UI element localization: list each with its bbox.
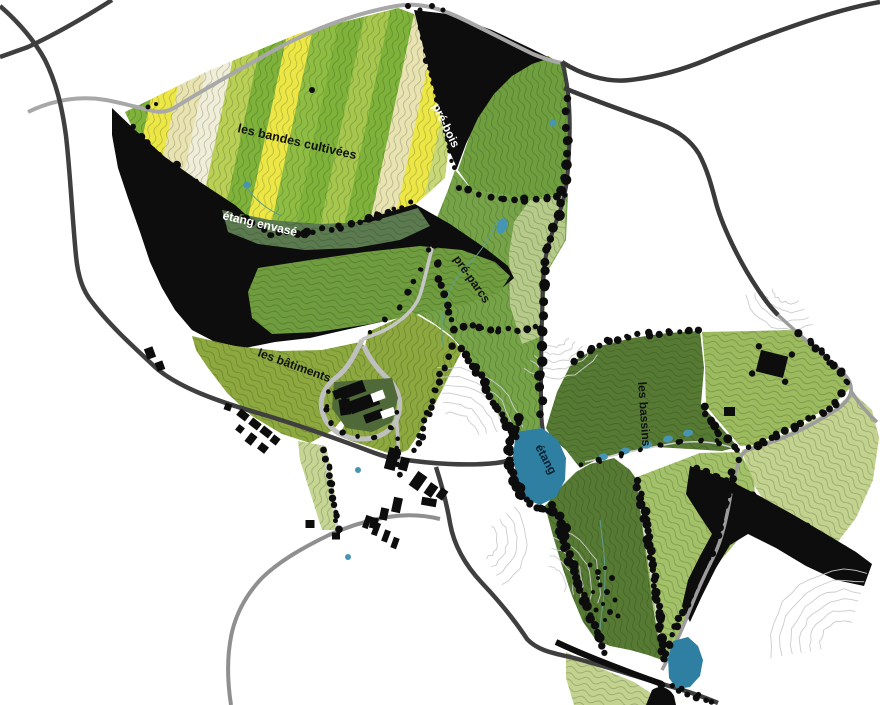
tree-dot [650,567,656,573]
tree-dot [340,429,346,435]
contour-line [502,507,527,585]
tree-dot [426,247,431,252]
tree-dot [441,8,446,13]
tree-dot [845,380,850,385]
tree-dot [693,465,700,472]
tree-dot [423,41,429,47]
map-canvas: les bandes cultivées pré-bois étang enva… [0,0,880,705]
tree-dot [486,393,494,401]
road-topleft-cross [0,0,112,57]
tree-dot [548,223,558,233]
tree-dot [619,451,625,457]
tree-dot [675,615,682,622]
tree-dot [442,365,448,371]
tree-dot [396,449,400,453]
tree-dot [326,389,331,394]
tree-dot [487,326,494,333]
contour-line [820,621,853,649]
tree-dot [533,196,540,203]
tree-dot [329,488,335,494]
tree-dot [162,159,170,167]
tree-dot [625,335,631,341]
tree-dot [388,425,393,430]
tree-dot [562,124,570,132]
tree-dot [521,197,528,204]
tree-dot [539,311,548,320]
tree-dot [537,326,547,336]
tree-dot [684,692,690,698]
tree-dot [392,207,397,212]
tree-dot [433,89,438,94]
tree-dot [146,105,151,110]
tree-dot [676,688,682,694]
tree-dot [719,518,725,524]
tree-dot [419,434,426,441]
tree-dot [563,150,571,158]
building [244,432,257,446]
tree-dot [533,324,538,329]
tree-dot [596,576,600,580]
tree-dot [561,160,572,171]
tree-dot [130,124,136,130]
tree-dot [564,95,572,103]
tree-dot [418,25,424,31]
tree-dot [729,481,735,487]
tree-dot [767,505,772,510]
tree-dot [577,351,585,359]
tree-dot [698,438,703,443]
tree-dot [812,529,819,536]
tree-dot [420,35,426,41]
tree-dot [837,368,846,377]
tree-dot [320,447,327,454]
tree-dot [695,327,702,334]
tree-dot [563,193,568,198]
tree-dot [728,468,736,476]
building [421,497,437,507]
tree-dot [658,681,666,689]
tree-dot [427,66,431,70]
tree-dot [333,510,338,515]
tree-dot [598,583,603,588]
tree-dot [154,102,158,106]
tree-dot [456,185,462,191]
building [269,434,280,445]
tree-dot [548,501,556,509]
tree-dot [588,563,593,568]
tree-dot [498,196,504,202]
tree-dot [794,329,802,337]
tree-dot [399,205,404,210]
tree-dot [819,347,825,353]
tree-dot [417,17,423,23]
tree-dot [657,442,662,447]
tree-dot [596,343,602,349]
tree-dot [666,328,672,334]
tree-dot [701,403,709,411]
tree-dot [331,502,337,508]
tree-dot [374,211,379,216]
tree-dot [693,584,698,589]
road-topright-2 [564,88,778,315]
tree-dot [601,602,605,606]
tree-dot [448,342,455,349]
tree-dot [445,309,452,316]
tree-dot [591,590,595,594]
tree-dot [715,430,722,437]
tree-dot [696,692,701,697]
building [306,520,315,528]
tree-dot [333,518,338,523]
tree-dot [723,434,732,443]
tree-dot [677,329,682,334]
tree-dot [335,223,342,230]
tree-dot [839,390,845,396]
tree-dot [543,195,550,202]
tree-dot [736,457,742,463]
tree-dot [173,161,181,169]
contour-line [445,412,478,435]
tree-dot [713,533,719,539]
tree-dot [515,419,522,426]
tree-dot [823,354,830,361]
contour-line [772,289,799,304]
building [332,533,340,540]
tree-dot [536,410,544,418]
tree-dot [595,569,601,575]
tree-dot [364,214,373,223]
tree-dot [205,190,213,198]
tree-dot [326,472,333,479]
tree-dot [382,317,386,321]
tree-dot [702,411,708,417]
tree-dot [541,258,550,267]
tree-dot [492,403,500,411]
tree-dot [603,618,607,622]
tree-dot [418,8,423,13]
tree-dot [716,441,722,447]
building [381,529,391,542]
tree-dot [830,361,838,369]
tree-dot [709,699,715,705]
tree-dot [511,197,518,204]
tree-dot [598,642,605,649]
building [338,398,351,415]
tree-dot [423,47,430,54]
tree-dot [395,436,400,441]
tree-dot [335,526,343,534]
tree-dot [634,331,640,337]
tree-dot [428,404,435,411]
tree-dot [769,435,775,441]
tree-dot [604,589,610,595]
tree-dot [685,327,693,335]
tree-dot [713,473,720,480]
tree-dot [328,420,334,426]
tree-dot [475,324,483,332]
tree-dot [327,480,334,487]
tree-dot [368,330,372,334]
tree-dot [445,353,452,360]
tree-dot [394,410,399,415]
tree-dot [432,387,437,392]
tree-dot [662,650,669,657]
tree-dot [436,371,443,378]
tree-dot [423,57,430,64]
tree-dot [194,179,198,183]
tree-dot [702,468,710,476]
tree-dot [464,186,472,194]
building [257,442,269,454]
tree-dot [776,508,784,516]
tree-dot [434,260,442,268]
tree-dot [596,457,602,463]
tree-dot [673,623,681,631]
tree-dot [791,425,798,432]
tree-dot [594,608,599,613]
tree-dot [397,304,402,309]
tree-dot [424,410,430,416]
tree-dot [436,276,442,282]
tree-dot [418,267,422,271]
tree-dot [656,627,662,633]
tree-dot [605,337,613,345]
tree-dot [476,192,482,198]
tree-dot [514,328,520,334]
tree-dot [694,578,700,584]
tree-dot [561,175,571,185]
tree-dot [576,586,584,594]
tree-dot [726,493,731,498]
tree-dot [854,559,861,566]
tree-dot [421,417,427,423]
tree-dot [303,228,312,237]
tree-dot [404,289,411,296]
tree-dot [395,454,400,459]
building-small-square [724,407,735,416]
tree-dot [526,501,533,508]
tree-dot [447,149,452,154]
tree-dot [544,243,552,251]
tree-dot [662,657,668,663]
tree-dot [323,407,329,413]
tree-dot [556,512,565,521]
tree-dot [757,499,763,505]
tree-dot [430,80,436,86]
tree-dot [309,87,315,93]
tree-dot [719,511,725,517]
tree-dot [460,323,468,331]
tree-dot [656,615,664,623]
forest-bottom-tip [646,687,676,705]
tree-dot [666,641,672,647]
tree-dot [844,550,852,558]
tree-dot [710,543,715,548]
tree-dot [535,382,544,391]
tree-dot [647,554,653,560]
tree-dot [405,3,411,9]
building [390,537,399,549]
tree-dot [705,555,711,561]
tree-dot [634,477,641,484]
tree-dot [438,282,445,289]
tree-dot [431,242,438,249]
tree-dot [322,456,329,463]
tree-dot [216,197,222,203]
tree-dot [717,524,724,531]
tree-dot [822,536,828,542]
building [259,425,273,438]
tree-dot [831,399,838,406]
building [235,424,245,434]
tree-dot [429,3,435,9]
tree-dot [828,540,837,549]
tree-dot [805,415,811,421]
tree-dot [722,502,729,509]
tree-dot [310,230,316,236]
tree-dot [540,282,550,292]
tree-dot [746,444,752,450]
tree-dot [541,266,550,275]
tree-dot [594,632,604,642]
tree-dot [826,406,833,413]
tree-dot [614,336,622,344]
tree-dot [656,603,663,610]
contour-line [487,526,498,559]
tree-dot [506,326,512,332]
tree-dot [582,601,592,611]
tree-dot [539,297,548,306]
tree-dot [356,435,360,439]
building [409,471,428,491]
tree-dot [607,609,613,615]
tree-dot [154,152,162,160]
contour-line [443,403,486,434]
tree-dot [411,448,416,453]
contour-line [491,519,508,567]
tree-dot [786,513,791,518]
tree-dot [537,356,547,366]
tree-dot [143,139,151,147]
tree-dot [420,426,426,432]
building [391,497,403,514]
tree-dot [505,437,514,446]
tree-dot [138,133,146,141]
road-bottom-left-gray [228,515,440,705]
tree-dot [450,326,458,334]
tree-dot [579,462,584,467]
tree-dot [563,136,572,145]
tree-dot [731,443,738,450]
tree-dot [372,435,377,440]
site-plan-map: les bandes cultivées pré-bois étang enva… [0,0,880,705]
tree-dot [150,147,155,152]
tree-dot [554,211,563,220]
tree-dot [613,598,618,603]
tree-dot [506,449,513,456]
tree-dot [812,344,820,352]
tree-dot [751,495,758,502]
tree-dot [647,547,656,556]
tree-dot [561,523,571,533]
tree-dot [638,448,642,452]
tree-dot [562,107,570,115]
tree-dot [820,410,827,417]
tree-dot [679,609,686,616]
tree-dot [327,465,333,471]
contour-line [810,610,856,651]
tree-dot [436,379,443,386]
tree-dot [444,302,452,310]
tree-dot [601,650,607,656]
tree-dot [523,325,531,333]
tree-dot [430,398,436,404]
tree-dot [678,439,683,444]
tree-dot [781,427,789,435]
tree-dot [563,542,571,550]
tree-dot [449,159,453,163]
tree-dot [537,505,545,513]
tree-dot [440,290,448,298]
tree-dot [688,592,694,598]
tree-dot [703,697,709,703]
tree-dot [488,194,495,201]
tree-dot [686,602,692,608]
tree-dot [470,322,476,328]
tree-dot [429,71,436,78]
tree-dot [670,632,675,637]
tree-dot [633,483,641,491]
tree-dot [408,200,413,205]
contour-line [544,338,569,347]
tree-dot [385,209,392,216]
tree-dot [395,462,400,467]
tree-dot [534,371,544,381]
tree-dot [449,317,454,322]
tree-dot [357,220,363,226]
tree-dot [329,496,335,502]
tree-dot [547,235,554,242]
tree-dot [803,523,811,531]
tree-dot [754,441,763,450]
tree-dot [709,550,716,557]
tree-dot [645,329,652,336]
tree-dot [656,331,663,338]
tree-dot [739,489,745,495]
tree-dot [537,341,547,351]
tree-dot [348,220,356,228]
tree-dot [646,533,654,541]
tree-dot [724,477,730,483]
tree-dot [495,329,501,335]
tree-dot [411,279,417,285]
tree-dot [538,396,547,405]
tree-dot [591,621,599,629]
tree-dot [178,170,185,177]
tree-dot [603,566,607,570]
tree-dot [329,227,335,233]
tree-dot [616,614,621,619]
tree-dot [670,683,675,688]
tree-dot [588,345,596,353]
tree-dot [553,193,561,201]
tree-dot [397,472,403,478]
contour-line [799,599,858,653]
tree-dot [700,563,707,570]
tree-dot [570,358,577,365]
tree-dot [609,575,615,581]
road-topright-1 [562,2,880,81]
